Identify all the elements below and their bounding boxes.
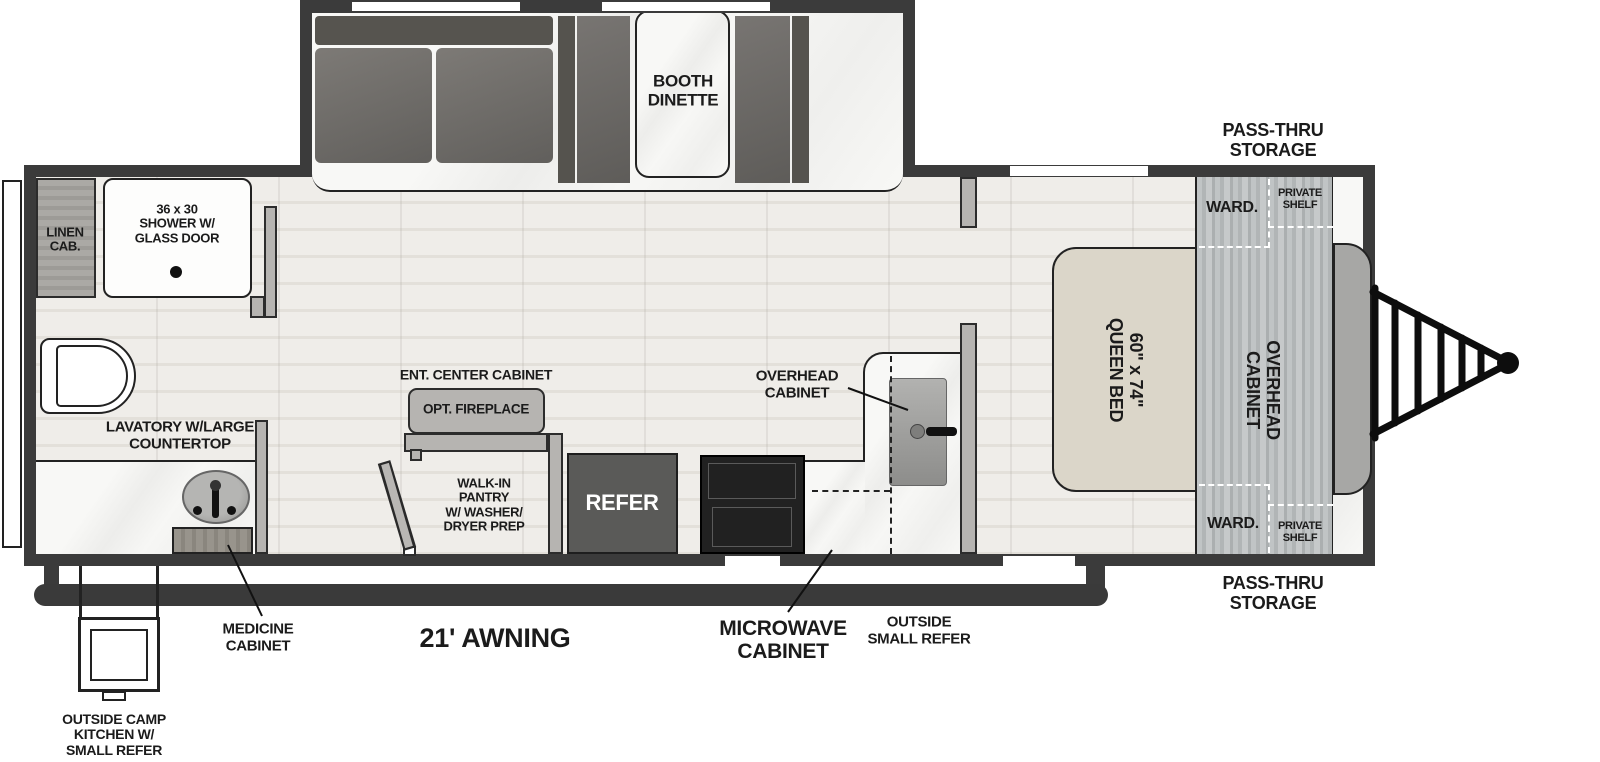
bedroom-partition-lower [960,323,977,554]
dinette-bench-right-back [792,16,809,183]
camp-kitchen-rail-right [156,566,159,617]
overhead-cabinet-front-label: OVERHEAD CABINET [1242,340,1282,440]
pass-thru-storage-top-label: PASS-THRU STORAGE [1223,121,1324,161]
camp-kitchen-latch [102,691,126,701]
bathroom-faucet-handle-right [227,506,236,515]
pantry-door-hinge-bottom [403,546,416,556]
linen-cab-label: LINEN CAB. [46,226,84,255]
awning-arm-left [44,564,59,586]
lavatory-label: LAVATORY W/LARGE COUNTERTOP [106,420,254,453]
overhead-dash-top [895,352,961,354]
pantry-door-hinge-top [410,449,422,461]
kitchen-faucet-knob [910,424,925,439]
opt-fireplace-label: OPT. FIREPLACE [423,403,529,418]
range-top-detail [708,463,796,499]
overhead-dash-horizontal [812,490,890,492]
slide-window-left [352,2,520,11]
overhead-dash-vertical [890,356,892,554]
toilet-bowl-inner [56,345,128,407]
sofa-cushion-left [315,48,432,163]
outside-small-refer-label: OUTSIDE SMALL REFER [867,615,970,648]
kitchen-faucet-spout [926,427,957,436]
shower-drain [170,266,182,278]
exterior-step-vent [725,556,780,566]
pantry-right-wall [548,433,563,554]
dinette-bench-left [577,16,630,183]
ent-center-base [404,433,548,452]
booth-dinette-label: BOOTH DINETTE [648,72,719,109]
slide-out-left-wall [300,0,312,177]
entry-door[interactable] [1003,556,1075,566]
shower-label: 36 x 30 SHOWER W/ GLASS DOOR [135,203,219,246]
sofa-cushion-right [436,48,553,163]
slide-window-right [602,2,770,11]
camp-kitchen-box-inner [90,629,148,681]
range-door-detail [712,507,792,547]
shower-glass-door [264,206,277,318]
dinette-bench-left-back [558,16,575,183]
sofa-backrest [315,16,553,45]
private-shelf-bottom-label: PRIVATE SHELF [1278,520,1322,544]
slide-out-right-wall [903,0,915,177]
bathroom-faucet-handle-left [193,506,202,515]
rear-bumper [2,180,22,548]
rv-floor-plan: BOOTH DINETTE LINEN CAB. 36 x 30 SHOWER … [0,0,1600,762]
kitchen-counter-low [805,460,865,554]
queen-bed-label: 60" x 74" QUEEN BED [1105,318,1145,422]
camp-kitchen-rail-left [79,566,82,617]
medicine-cabinet [172,527,253,554]
hitch-ball [1497,352,1519,374]
top-wall-left-segment [24,165,312,177]
bedroom-top-window [1010,166,1148,176]
overhead-cabinet-kitchen-label: OVERHEAD CABINET [756,369,839,402]
refer-label: REFER [585,491,658,515]
awning-label: 21' AWNING [420,624,571,654]
left-wall [24,165,36,566]
front-cap [1333,243,1372,495]
medicine-cabinet-label: MEDICINE CABINET [223,622,294,655]
shower-glass-door-return [250,296,265,318]
ent-center-cabinet-label: ENT. CENTER CABINET [400,367,552,382]
pass-thru-storage-bottom-label: PASS-THRU STORAGE [1223,574,1324,614]
microwave-cabinet-label: MICROWAVE CABINET [719,617,847,663]
walk-in-pantry-label: WALK-IN PANTRY W/ WASHER/ DRYER PREP [443,476,524,533]
awning-bar [34,584,1108,606]
outside-camp-kitchen-label: OUTSIDE CAMP KITCHEN W/ SMALL REFER [62,712,166,758]
hitch-tongue [1373,288,1502,438]
bathroom-faucet-knob [210,480,221,491]
dinette-bench-right [735,16,790,183]
ward-top-label: WARD. [1206,199,1258,217]
bottom-wall [24,554,1375,566]
bedroom-partition-upper [960,177,977,228]
bathroom-partition-wall [255,420,268,554]
private-shelf-top-label: PRIVATE SHELF [1278,187,1322,211]
ward-bottom-label: WARD. [1207,515,1259,533]
